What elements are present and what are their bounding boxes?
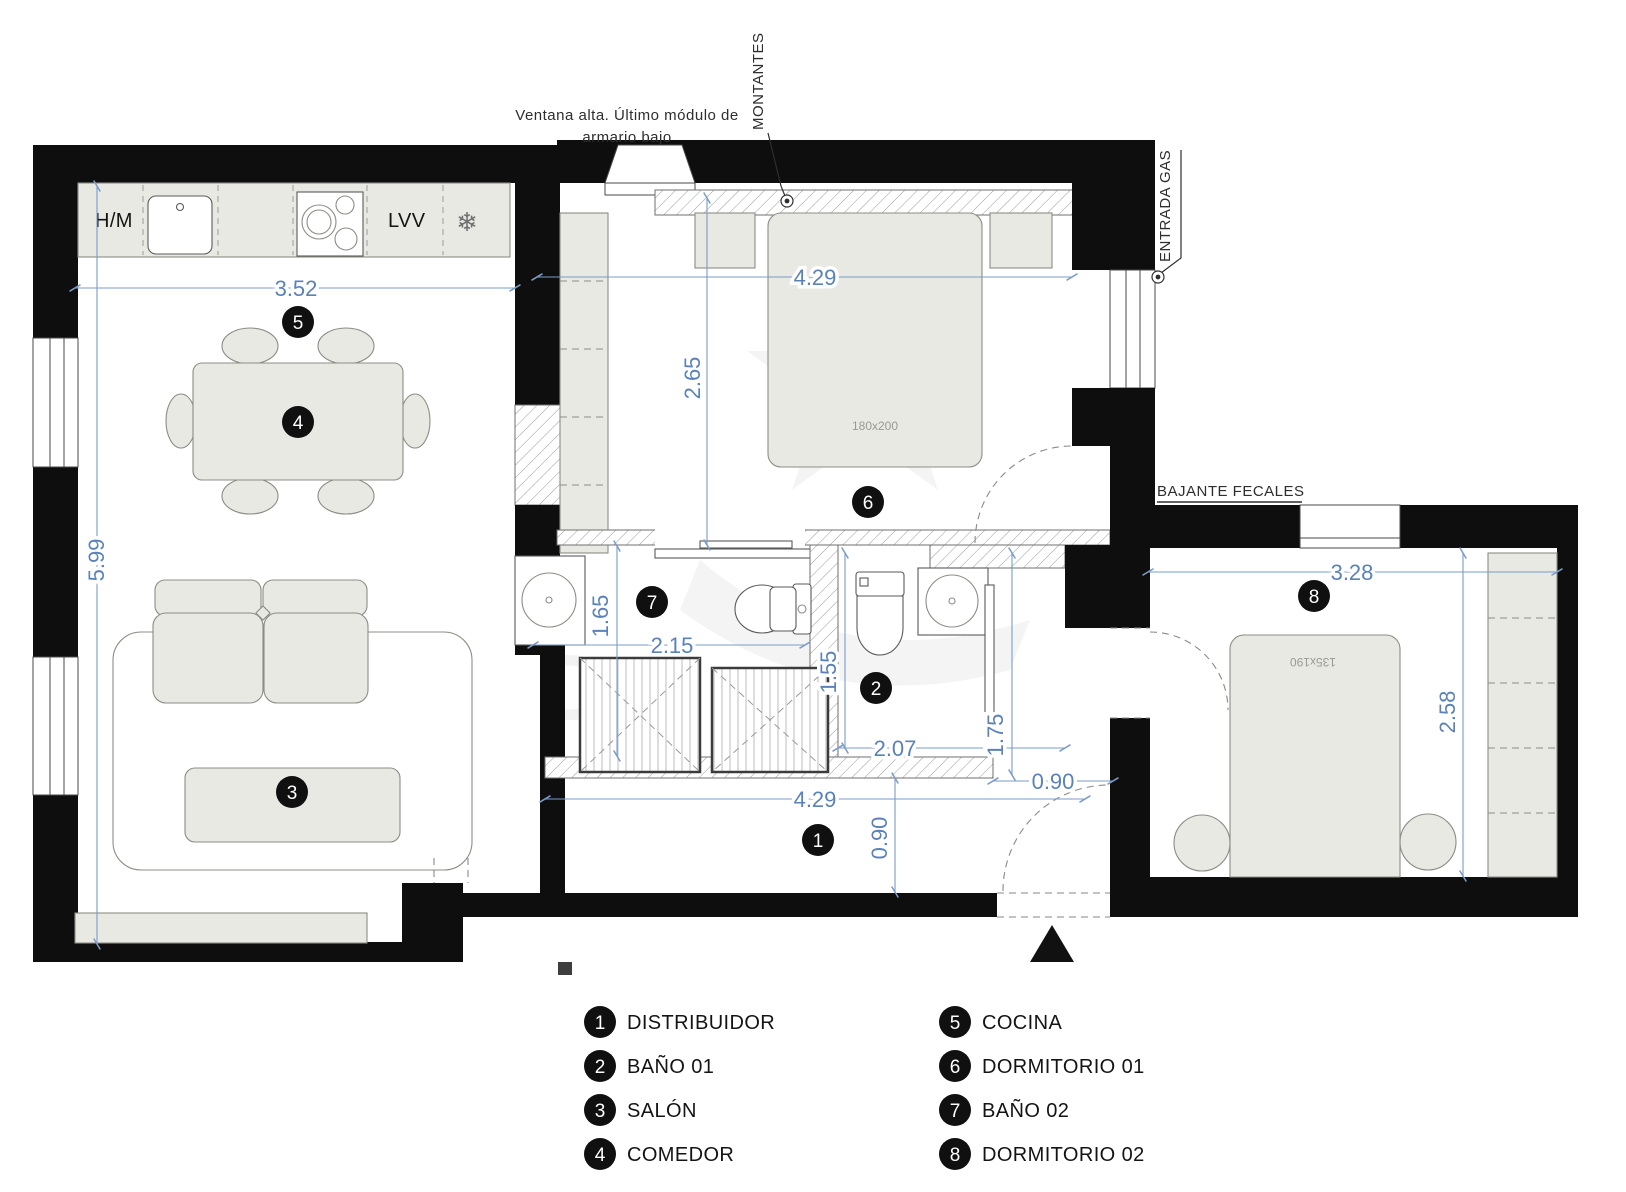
montantes-wall: [655, 190, 1080, 215]
dishwasher-label: LVV: [388, 210, 426, 232]
dim-bath1-depth: 1.55: [816, 651, 841, 694]
kitchen-counter: H/M LVV ❄: [78, 183, 510, 257]
legend-label: SALÓN: [627, 1099, 697, 1122]
floor-plan-drawing: D: [0, 0, 1626, 1192]
stove-icon: [297, 192, 363, 256]
svg-text:6: 6: [950, 1057, 961, 1078]
ventana-alta-note-line2: armario bajo: [582, 129, 671, 146]
dim-dorm1-width: 4.29: [794, 265, 837, 290]
entry-opening: [997, 893, 1110, 917]
legend-label: DORMITORIO 02: [982, 1144, 1145, 1166]
dorm2-furniture: 135x190: [1174, 553, 1557, 877]
entrada-gas-label: ENTRADA GAS: [1157, 150, 1174, 262]
dim-hall-width: 4.29: [794, 787, 837, 812]
svg-text:4: 4: [595, 1145, 606, 1166]
legend-label: COMEDOR: [627, 1144, 734, 1166]
legend-item-3: 3SALÓN: [584, 1094, 697, 1126]
room-marker-6: 6: [852, 486, 884, 518]
wardrobe-dorm1: [560, 213, 608, 553]
legend-item-7: 7BAÑO 02: [939, 1094, 1069, 1126]
nightstand: [695, 213, 755, 268]
svg-text:2: 2: [595, 1057, 606, 1078]
freezer-icon: ❄: [456, 207, 478, 237]
legend-item-1: 1DISTRIBUIDOR: [584, 1006, 775, 1038]
sink-bath1: [918, 568, 988, 635]
window-left-1: [33, 338, 78, 467]
svg-text:1: 1: [595, 1013, 606, 1034]
dim-dorm1-depth: 2.65: [680, 357, 705, 400]
svg-text:4: 4: [293, 413, 304, 434]
nightstand: [990, 213, 1052, 268]
legend-item-6: 6DORMITORIO 01: [939, 1050, 1145, 1082]
washer-label: H/M: [95, 210, 133, 232]
room-marker-1: 1: [802, 824, 834, 856]
dorm2-door-opening: [1110, 628, 1150, 718]
svg-text:7: 7: [647, 593, 658, 614]
wardrobe-dorm2: [1488, 553, 1557, 877]
legend-label: DISTRIBUIDOR: [627, 1012, 775, 1034]
radiator-bench: [75, 913, 367, 943]
svg-text:3: 3: [595, 1101, 606, 1122]
high-window: [605, 145, 695, 195]
dim-bath2-width: 2.15: [651, 633, 694, 658]
storage-box-1: [580, 658, 700, 772]
toilet-bath2: [735, 584, 811, 634]
legend-item-5: 5COCINA: [939, 1006, 1062, 1038]
dim-kitchen-width: 3.52: [275, 276, 318, 301]
room-marker-8: 8: [1298, 580, 1330, 612]
nightstand: [1400, 814, 1456, 870]
svg-text:1: 1: [813, 831, 824, 852]
dim-dorm2-width: 3.28: [1331, 560, 1374, 585]
room-marker-5: 5: [282, 306, 314, 338]
window-dorm2: [1300, 505, 1400, 548]
dorm2-door-arc: [1150, 632, 1228, 710]
dorm1-furniture: 180x200: [560, 213, 1052, 553]
dim-hall-depth: 0.90: [867, 817, 892, 860]
legend-label: DORMITORIO 01: [982, 1056, 1145, 1078]
storage-box-2: [712, 668, 828, 772]
svg-text:7: 7: [950, 1101, 961, 1122]
svg-text:3: 3: [287, 783, 298, 804]
dim-shower-depth: 1.75: [983, 714, 1008, 757]
svg-text:6: 6: [863, 493, 874, 514]
room-marker-3: 3: [276, 776, 308, 808]
room-marker-7: 7: [636, 586, 668, 618]
sink-icon: [148, 196, 212, 254]
sink-bath2: [515, 556, 585, 645]
dim-dorm2-depth: 2.58: [1435, 691, 1460, 734]
bed-dorm2: [1230, 635, 1400, 877]
shower-screen: [985, 585, 994, 728]
svg-text:2: 2: [871, 679, 882, 700]
legend-label: BAÑO 02: [982, 1098, 1069, 1122]
legend-item-2: 2BAÑO 01: [584, 1050, 714, 1082]
toilet-bath1: [856, 572, 904, 655]
dim-bath2-depth: 1.65: [588, 595, 613, 638]
room-marker-4: 4: [282, 406, 314, 438]
room-marker-2: 2: [860, 672, 892, 704]
dim-salon-height: 5.99: [84, 539, 109, 582]
svg-text:5: 5: [293, 313, 304, 334]
bed-size-label: 135x190: [1290, 655, 1336, 669]
svg-text:5: 5: [950, 1013, 961, 1034]
window-left-2: [33, 657, 78, 795]
sofa: [153, 580, 368, 703]
dim-entry-door: 0.90: [1032, 769, 1075, 794]
legend-item-4: 4COMEDOR: [584, 1138, 734, 1170]
dorm1-door-arc: [975, 446, 1072, 543]
entry-door-arc: [1003, 785, 1109, 891]
bajante-fecales-label: BAJANTE FECALES: [1157, 483, 1305, 500]
svg-text:8: 8: [950, 1145, 961, 1166]
svg-text:8: 8: [1309, 587, 1320, 608]
ventana-alta-note-line1: Ventana alta. Último módulo de: [515, 107, 738, 124]
nightstand: [1174, 815, 1230, 871]
legend-label: BAÑO 01: [627, 1054, 714, 1078]
legend-item-8: 8DORMITORIO 02: [939, 1138, 1145, 1170]
legend: 1DISTRIBUIDOR 2BAÑO 01 3SALÓN 4COMEDOR 5…: [584, 1006, 1145, 1170]
floor-plan-page: D: [0, 0, 1626, 1192]
window-dorm1: [1110, 270, 1155, 388]
dim-bath1-width: 2.07: [874, 736, 917, 761]
legend-label: COCINA: [982, 1012, 1062, 1034]
entrance-arrow: [1030, 925, 1074, 962]
bed-size-label: 180x200: [852, 419, 898, 433]
montantes-label: MONTANTES: [750, 32, 767, 130]
wall-hatch-segment: [515, 405, 560, 505]
